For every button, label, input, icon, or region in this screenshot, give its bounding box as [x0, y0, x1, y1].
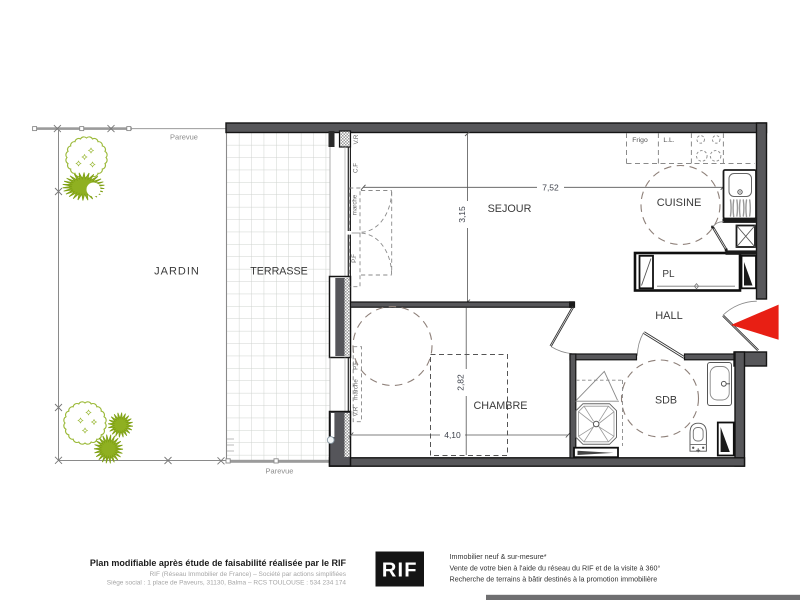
- svg-text:P.F: P.F: [353, 361, 360, 370]
- svg-text:P.F: P.F: [351, 254, 358, 263]
- svg-text:Frigo: Frigo: [632, 137, 648, 144]
- svg-text:TERRASSE: TERRASSE: [250, 266, 308, 278]
- svg-text:SEJOUR: SEJOUR: [488, 203, 532, 215]
- svg-text:Plan modifiable après étude de: Plan modifiable après étude de faisabili…: [90, 558, 347, 568]
- svg-text:SDB: SDB: [655, 395, 677, 407]
- svg-text:marche: marche: [353, 379, 360, 400]
- svg-text:JARDIN: JARDIN: [154, 266, 200, 278]
- svg-text:Vente de votre bien à l'aide d: Vente de votre bien à l'aide du réseau d…: [450, 563, 661, 572]
- svg-text:marche: marche: [352, 194, 359, 215]
- svg-text:7,52: 7,52: [542, 182, 559, 192]
- svg-text:V.R: V.R: [353, 406, 360, 416]
- svg-text:Recherche de terrains à bâtir: Recherche de terrains à bâtir destinés à…: [450, 574, 658, 583]
- svg-text:RIF: RIF: [382, 560, 418, 582]
- svg-text:L.L.: L.L.: [663, 137, 674, 144]
- svg-text:HALL: HALL: [655, 310, 683, 322]
- svg-text:Siège social : 1 place de Pave: Siège social : 1 place de Paveurs, 31130…: [107, 579, 347, 586]
- svg-text:CHAMBRE: CHAMBRE: [474, 400, 528, 412]
- svg-text:Parevue: Parevue: [170, 133, 198, 142]
- svg-text:Parevue: Parevue: [266, 467, 294, 476]
- svg-text:RIF (Réseau Immobilier de Fran: RIF (Réseau Immobilier de France) – Soci…: [149, 571, 346, 578]
- svg-text:C.F: C.F: [353, 163, 360, 173]
- svg-text:4,10: 4,10: [444, 430, 461, 440]
- svg-text:CUISINE: CUISINE: [657, 197, 702, 209]
- svg-text:Immobilier neuf & sur-mesure*: Immobilier neuf & sur-mesure*: [450, 552, 547, 561]
- svg-text:3,15: 3,15: [457, 206, 467, 223]
- svg-text:PL: PL: [662, 269, 675, 280]
- svg-text:2,82: 2,82: [456, 374, 466, 391]
- svg-text:V.R: V.R: [353, 134, 360, 144]
